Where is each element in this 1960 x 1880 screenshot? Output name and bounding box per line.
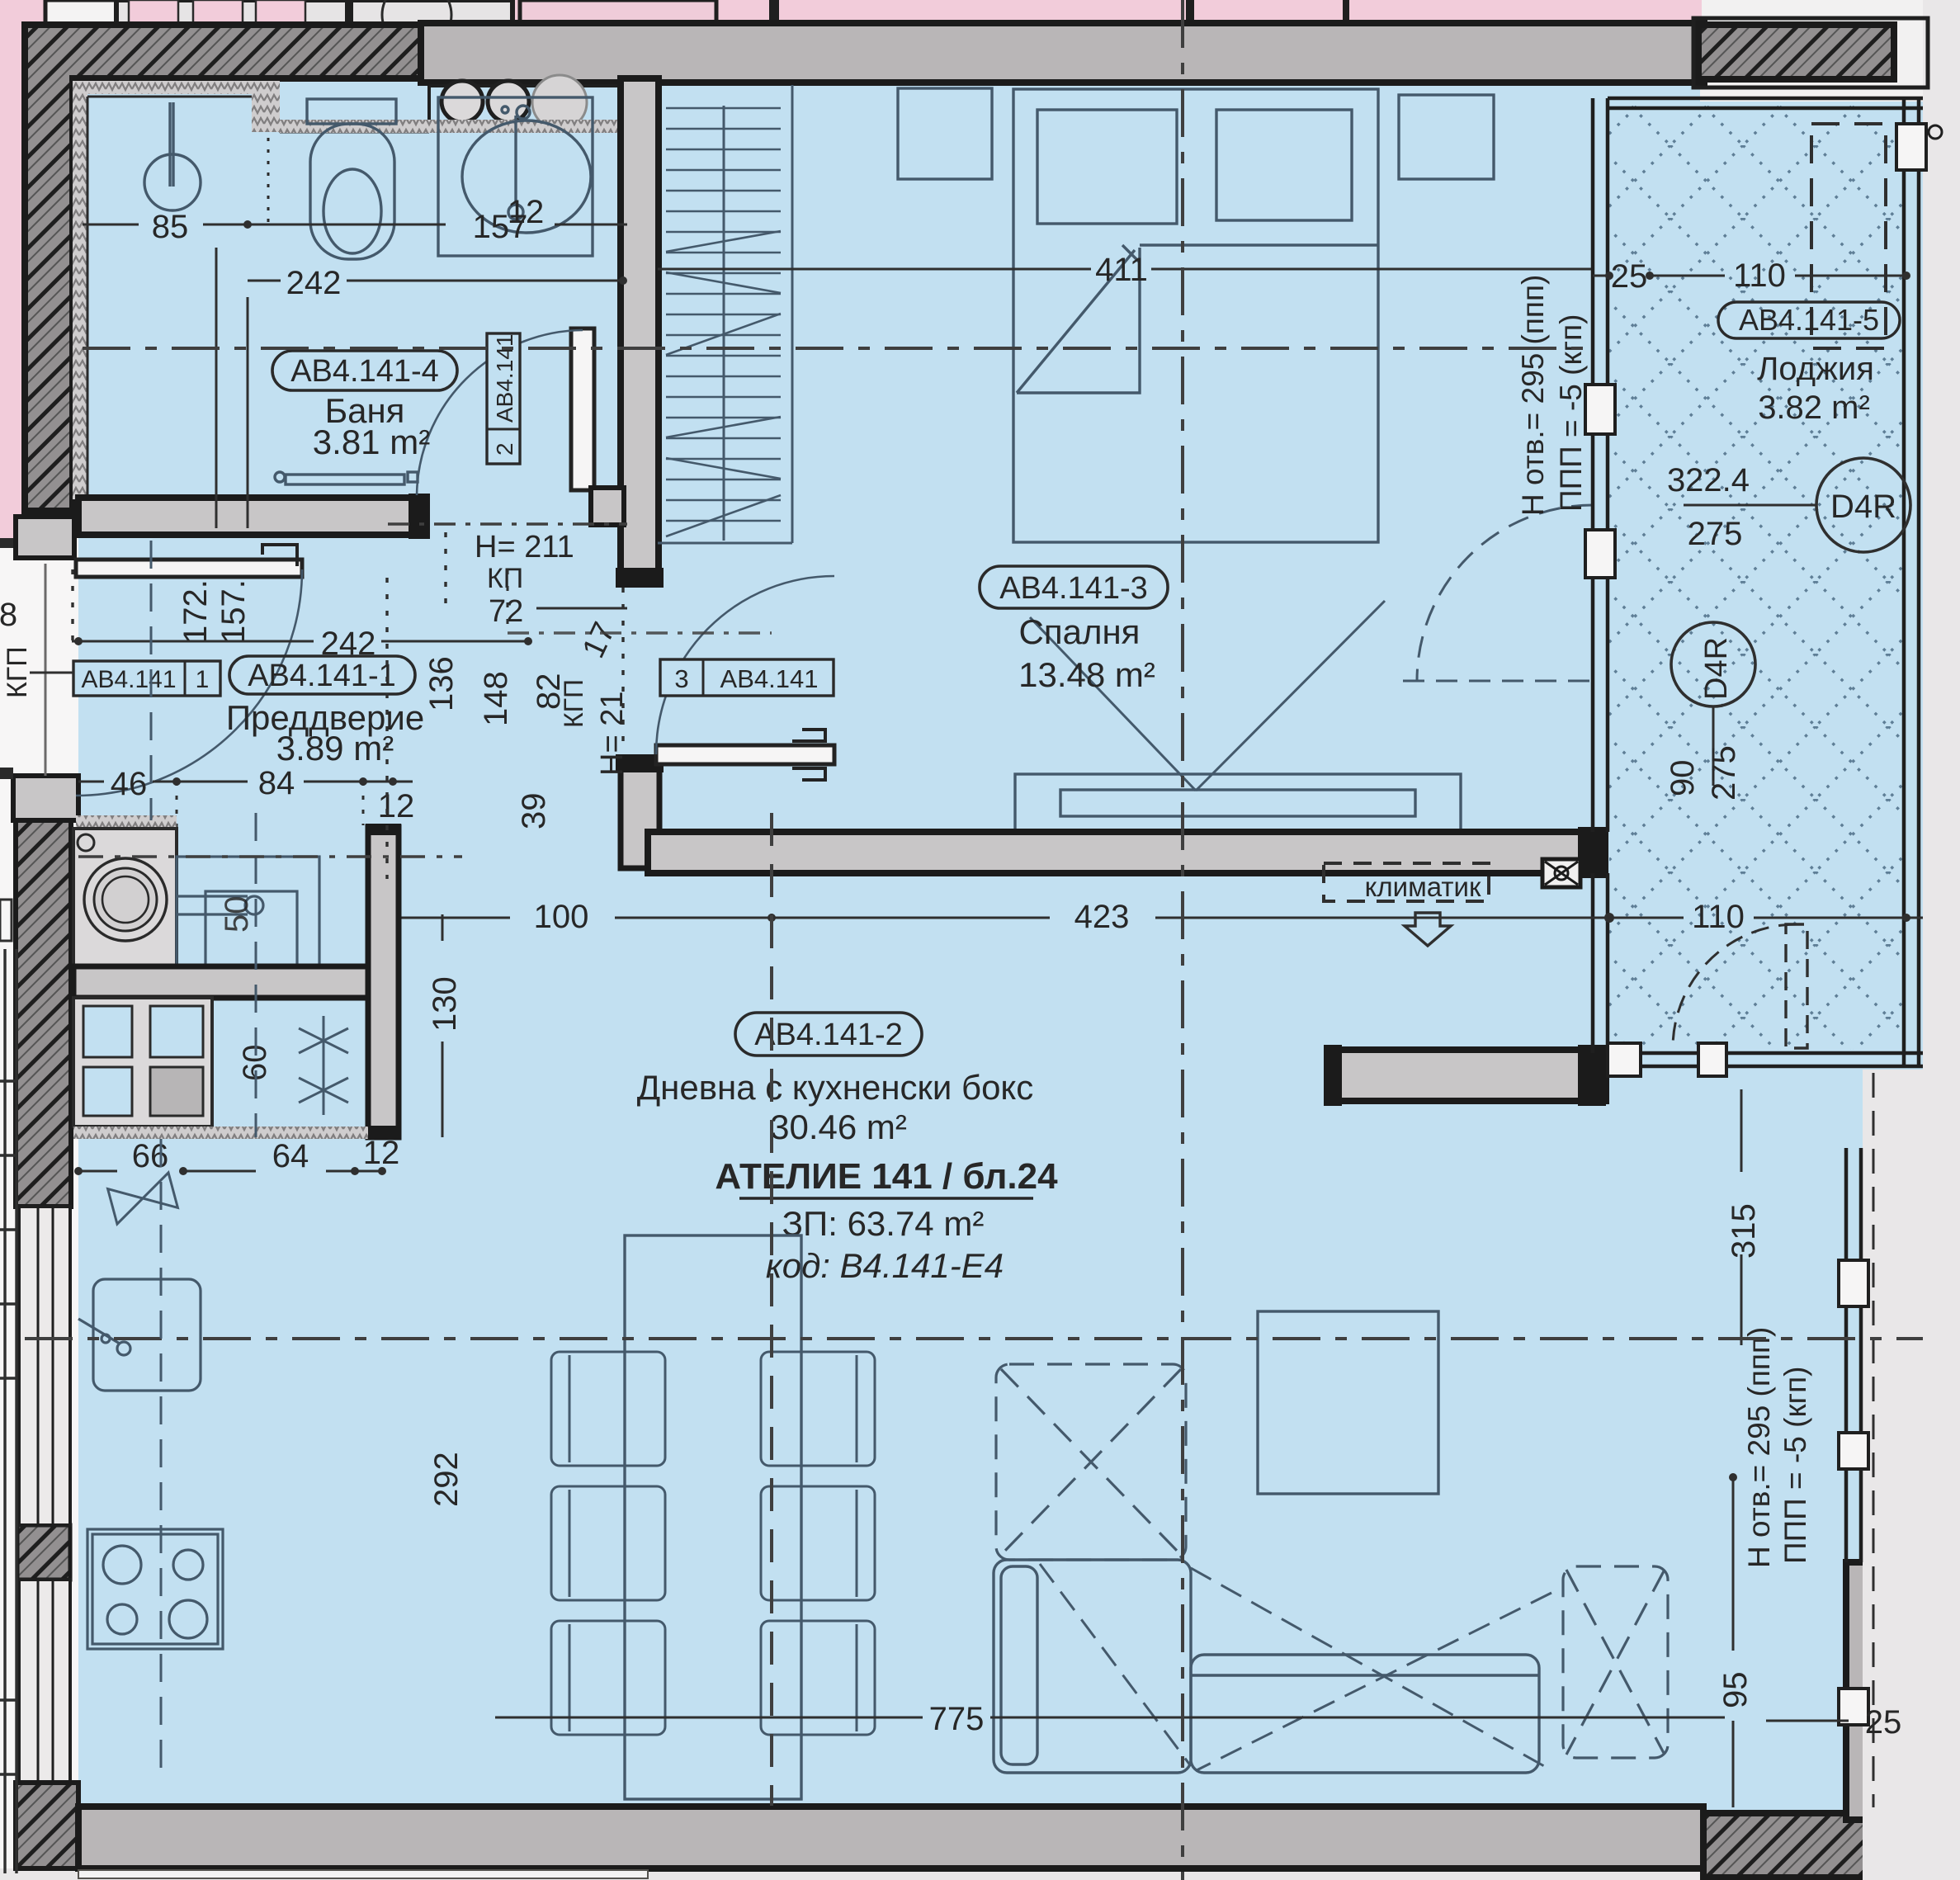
svg-text:3.81 m²: 3.81 m² xyxy=(313,423,430,461)
svg-text:АТЕЛИЕ 141 / бл.24: АТЕЛИЕ 141 / бл.24 xyxy=(715,1156,1058,1197)
svg-text:95: 95 xyxy=(1717,1672,1754,1709)
svg-text:100: 100 xyxy=(534,899,589,935)
svg-text:АВ4.141-2: АВ4.141-2 xyxy=(754,1018,903,1052)
svg-text:25: 25 xyxy=(1611,258,1648,295)
svg-text:D4R: D4R xyxy=(1699,637,1734,700)
svg-text:30.46 m²: 30.46 m² xyxy=(770,1108,907,1146)
svg-text:АВ4.141: АВ4.141 xyxy=(720,664,819,693)
svg-text:КП: КП xyxy=(487,563,523,594)
svg-text:39: 39 xyxy=(516,793,552,830)
svg-text:АВ4.141-1: АВ4.141-1 xyxy=(248,659,396,693)
svg-text:130: 130 xyxy=(427,976,463,1032)
svg-text:Лоджия: Лоджия xyxy=(1757,351,1874,387)
svg-text:66: 66 xyxy=(132,1138,169,1174)
svg-text:2: 2 xyxy=(492,442,517,456)
svg-text:Н= 211: Н= 211 xyxy=(475,530,574,564)
svg-text:242: 242 xyxy=(321,626,376,662)
svg-text:АВ4.141-5: АВ4.141-5 xyxy=(1739,303,1879,337)
svg-text:Спалня: Спалня xyxy=(1019,612,1141,651)
svg-text:1: 1 xyxy=(196,666,210,693)
svg-text:D4R: D4R xyxy=(1830,489,1896,525)
svg-text:3: 3 xyxy=(674,664,688,693)
svg-text:Дневна с кухненски бокс: Дневна с кухненски бокс xyxy=(637,1068,1034,1107)
svg-text:148: 148 xyxy=(478,671,514,726)
svg-text:110: 110 xyxy=(1733,257,1786,294)
svg-text:3.89 m²: 3.89 m² xyxy=(276,729,394,768)
svg-text:ППП = -5 (кгп): ППП = -5 (кгп) xyxy=(1554,314,1588,513)
svg-text:411: 411 xyxy=(1095,252,1148,288)
svg-text:КГП: КГП xyxy=(2,646,33,698)
svg-text:25: 25 xyxy=(1865,1704,1902,1741)
svg-text:12: 12 xyxy=(363,1135,400,1171)
svg-text:50: 50 xyxy=(219,896,255,933)
svg-text:275: 275 xyxy=(1706,745,1742,801)
svg-text:315: 315 xyxy=(1726,1203,1762,1259)
svg-text:3.82 m²: 3.82 m² xyxy=(1758,390,1870,426)
svg-text:64: 64 xyxy=(272,1138,309,1174)
svg-text:46: 46 xyxy=(111,766,148,802)
svg-text:85: 85 xyxy=(152,209,189,245)
svg-text:АВ4.141-3: АВ4.141-3 xyxy=(999,571,1148,606)
svg-text:ППП = -5 (кгп): ППП = -5 (кгп) xyxy=(1778,1367,1812,1565)
svg-text:13.48 m²: 13.48 m² xyxy=(1018,655,1155,694)
svg-text:775: 775 xyxy=(929,1701,985,1737)
svg-text:АВ4.141: АВ4.141 xyxy=(81,666,176,693)
svg-text:климатик: климатик xyxy=(1365,872,1481,902)
svg-text:8: 8 xyxy=(0,597,17,633)
svg-text:84: 84 xyxy=(258,765,295,801)
svg-text:322.4: 322.4 xyxy=(1667,462,1750,498)
svg-text:242: 242 xyxy=(286,265,342,301)
svg-text:423: 423 xyxy=(1074,899,1130,935)
svg-text:292: 292 xyxy=(428,1452,465,1507)
svg-text:136: 136 xyxy=(423,656,460,711)
svg-text:12: 12 xyxy=(508,194,545,230)
svg-text:АВ4.141-4: АВ4.141-4 xyxy=(290,354,439,389)
svg-text:Н отв.= 295 (ппп): Н отв.= 295 (ппп) xyxy=(1742,1327,1776,1568)
svg-text:Н отв.= 295 (ппп): Н отв.= 295 (ппп) xyxy=(1516,275,1550,516)
svg-text:275: 275 xyxy=(1688,516,1743,552)
svg-text:90: 90 xyxy=(1665,760,1701,797)
svg-text:12: 12 xyxy=(378,788,415,824)
svg-text:КГП: КГП xyxy=(559,679,588,728)
svg-text:ЗП: 63.74 m²: ЗП: 63.74 m² xyxy=(782,1204,985,1243)
svg-text:110: 110 xyxy=(1692,899,1745,935)
svg-text:72: 72 xyxy=(489,594,523,629)
